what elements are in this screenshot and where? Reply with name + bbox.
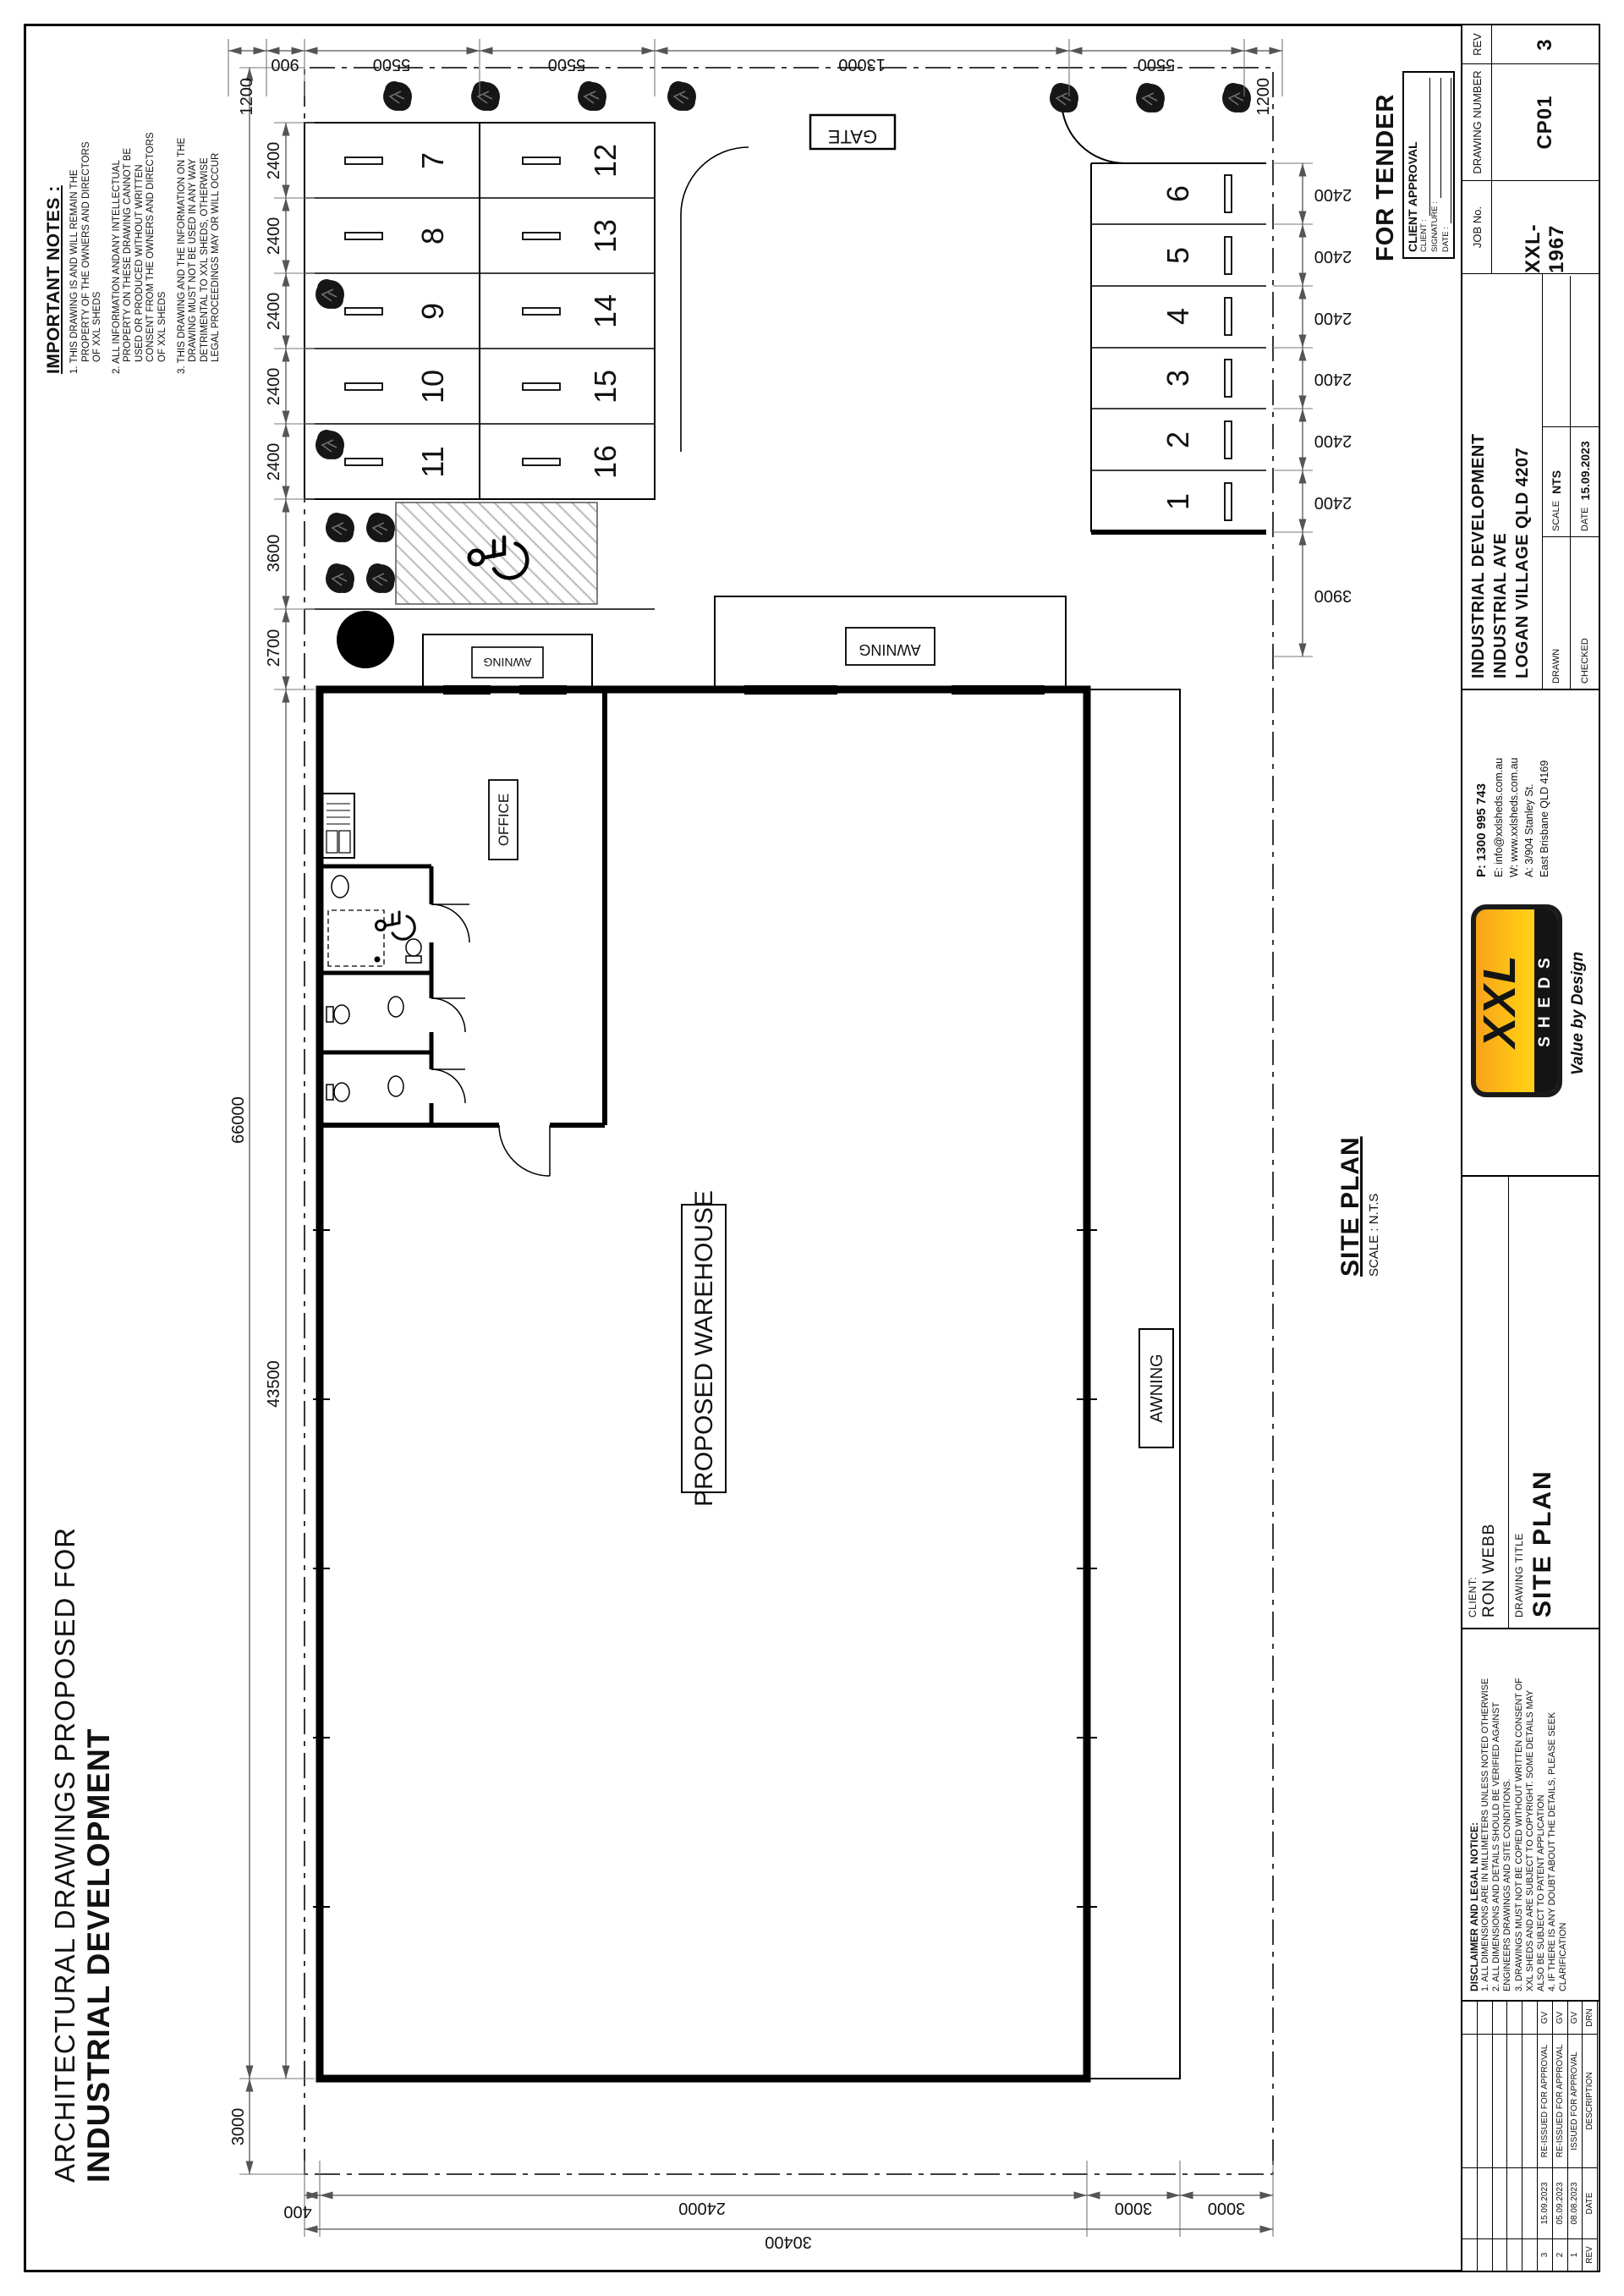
job-number-value: XXL-1967 (1492, 180, 1599, 273)
svg-text:11: 11 (415, 446, 450, 477)
svg-text:8: 8 (415, 228, 450, 244)
disclaimer-body: 1. ALL DIMENSIONS ARE IN MILLIMETERS UNL… (1480, 1638, 1569, 1991)
drawing-title-value: SITE PLAN (1528, 1187, 1557, 1618)
client-approval-title: CLIENT APPROVAL (1406, 78, 1419, 252)
svg-text:6: 6 (1160, 185, 1195, 202)
contact-block: P: 1300 995 743 E: info@xxlsheds.com.au … (1473, 695, 1552, 877)
svg-text:14: 14 (588, 294, 623, 328)
logo-word-xxl: XXL (1476, 909, 1523, 1092)
svg-text:5500: 5500 (1138, 55, 1176, 74)
scale-label: SCALE (1551, 501, 1561, 531)
svg-text:3000: 3000 (1208, 2199, 1246, 2217)
important-notes: IMPORTANT NOTES : 1. THIS DRAWING IS AND… (44, 34, 230, 374)
disabled-parking (396, 503, 597, 604)
svg-text:5500: 5500 (548, 55, 586, 74)
important-notes-heading: IMPORTANT NOTES : (44, 34, 64, 374)
svg-text:5: 5 (1160, 247, 1195, 264)
disclaimer: DISCLAIMER AND LEGAL NOTICE: 1. ALL DIME… (1462, 1628, 1599, 2000)
sheet-title-line1: ARCHITECTURAL DRAWINGS PROPOSED FOR (49, 1527, 81, 2183)
note-1: 1. THIS DRAWING IS AND WILL REMAIN THE P… (69, 34, 104, 374)
contact-address1: A: 3/904 Stanley St. (1522, 695, 1537, 877)
drawing-number-value: CP01 (1492, 63, 1599, 180)
svg-text:2400: 2400 (1314, 185, 1352, 204)
client-approval-box: CLIENT APPROVAL CLIENT : SIGNATURE : DAT… (1402, 71, 1455, 259)
disclaimer-heading: DISCLAIMER AND LEGAL NOTICE: (1468, 1638, 1480, 1991)
svg-text:43500: 43500 (265, 1360, 283, 1408)
svg-text:2400: 2400 (1314, 431, 1352, 450)
project-line1: INDUSTRIAL DEVELOPMENT (1468, 284, 1490, 678)
project-line3: LOGAN VILLAGE QLD 4207 (1512, 284, 1533, 678)
svg-text:15: 15 (588, 370, 623, 404)
svg-text:2700: 2700 (265, 629, 283, 667)
for-tender-stamp: FOR TENDER (1372, 31, 1400, 261)
rev-cell: 08.08.2023 (1568, 2167, 1583, 2238)
rev-cell: GV (1538, 2002, 1553, 2034)
client-and-title: CLIENT: RON WEBB DRAWING TITLE SITE PLAN (1462, 1175, 1599, 1628)
project-line2: INDUSTRIAL AVE (1490, 284, 1512, 678)
logo-tagline: Value by Design (1569, 952, 1588, 1075)
door-panel (519, 685, 567, 695)
svg-text:3900: 3900 (1314, 586, 1352, 605)
svg-text:2400: 2400 (265, 142, 283, 180)
approval-client-label: CLIENT : (1419, 219, 1430, 252)
contact-email: E: info@xxlsheds.com.au (1491, 695, 1506, 877)
svg-text:13000: 13000 (838, 55, 886, 74)
svg-text:2400: 2400 (265, 443, 283, 481)
contact-address2: East Brisbane QLD 4169 (1537, 695, 1552, 877)
rev-header: DATE (1583, 2167, 1598, 2238)
plan-caption: SITE PLAN SCALE : N.T.S (1336, 1136, 1381, 1277)
plan-caption-scale: SCALE : N.T.S (1367, 1136, 1381, 1277)
drawing-title-label: DRAWING TITLE (1513, 1187, 1525, 1618)
rev-cell: 1 (1568, 2238, 1583, 2271)
svg-text:10: 10 (415, 370, 450, 404)
svg-text:4: 4 (1160, 308, 1195, 325)
rev-cell: 2 (1553, 2238, 1568, 2271)
svg-text:5500: 5500 (373, 55, 411, 74)
svg-text:3000: 3000 (1115, 2199, 1153, 2217)
drawn-label: DRAWN (1551, 649, 1561, 684)
warehouse-label: PROPOSED WAREHOUSE (690, 1190, 718, 1507)
approval-client-line (1421, 78, 1430, 216)
office-label: OFFICE (496, 794, 512, 846)
svg-text:2400: 2400 (1314, 247, 1352, 266)
svg-text:30400: 30400 (765, 2233, 812, 2251)
plan-caption-title: SITE PLAN (1336, 1136, 1365, 1277)
rev-cell: RE-ISSUED FOR APPROVAL (1553, 2034, 1568, 2167)
scale-value: NTS (1550, 470, 1563, 494)
date-value: 15.09.2023 (1578, 441, 1592, 500)
svg-text:13: 13 (588, 219, 623, 253)
contact-phone: P: 1300 995 743 (1473, 695, 1491, 877)
svg-text:2400: 2400 (265, 293, 283, 331)
screenshot-root: PROPOSED WAREHOUSE AWNING (0, 0, 1624, 2296)
contact-web: W: www.xxlsheds.com.au (1506, 695, 1522, 877)
date-label: DATE (1580, 507, 1590, 531)
svg-text:9: 9 (415, 303, 450, 320)
svg-text:12: 12 (588, 144, 623, 178)
gate-label: GATE (828, 126, 877, 147)
approval-signature-line (1432, 78, 1441, 198)
drawing-number-label: DRAWING NUMBER (1462, 63, 1491, 180)
svg-text:1: 1 (1160, 493, 1195, 510)
svg-text:3: 3 (1160, 370, 1195, 387)
rev-header: DESCRIPTION (1583, 2034, 1598, 2167)
svg-text:16: 16 (588, 445, 623, 479)
job-number-label: JOB No. (1462, 180, 1491, 273)
roller-door (952, 685, 1045, 695)
title-block: 3 15.09.2023 RE-ISSUED FOR APPROVAL GV 2… (1461, 25, 1599, 2271)
rev-cell: 05.09.2023 (1553, 2167, 1568, 2238)
svg-text:2400: 2400 (1314, 309, 1352, 327)
note-3: 3. THIS DRAWING AND THE INFORMATION ON T… (177, 34, 222, 374)
svg-text:1200: 1200 (238, 78, 256, 116)
svg-text:2400: 2400 (265, 368, 283, 406)
rev-label: REV (1462, 25, 1491, 63)
roller-door (744, 685, 837, 695)
xxl-sheds-logo: XXL SHEDS (1471, 904, 1562, 1097)
client-name: RON WEBB (1480, 1187, 1499, 1618)
rev-cell: GV (1568, 2002, 1583, 2034)
water-tank (337, 611, 394, 668)
svg-text:2400: 2400 (265, 217, 283, 255)
revision-table: 3 15.09.2023 RE-ISSUED FOR APPROVAL GV 2… (1462, 2000, 1599, 2271)
sheet-title-line2: INDUSTRIAL DEVELOPMENT (81, 1527, 118, 2183)
checked-label: CHECKED (1580, 638, 1590, 684)
door-panel (443, 685, 491, 695)
rev-cell: RE-ISSUED FOR APPROVAL (1538, 2034, 1553, 2167)
drawing-sheet: PROPOSED WAREHOUSE AWNING (0, 0, 1624, 2296)
svg-text:2400: 2400 (1314, 493, 1352, 512)
project-section: INDUSTRIAL DEVELOPMENT INDUSTRIAL AVE LO… (1462, 25, 1599, 689)
east-awning-2-label: AWNING (859, 641, 920, 658)
svg-text:7: 7 (415, 152, 450, 169)
sheet-title: ARCHITECTURAL DRAWINGS PROPOSED FOR INDU… (49, 1527, 117, 2183)
rev-header: REV (1583, 2238, 1598, 2271)
svg-text:2400: 2400 (1314, 370, 1352, 388)
approval-date-line (1442, 78, 1451, 223)
bay-numbers-row-a: 7 8 9 10 11 (415, 152, 450, 478)
rev-value: 3 (1492, 25, 1599, 63)
rev-cell: GV (1553, 2002, 1568, 2034)
rev-cell: ISSUED FOR APPROVAL (1568, 2034, 1583, 2167)
svg-text:1200: 1200 (1254, 78, 1273, 116)
svg-text:900: 900 (271, 55, 299, 74)
client-label: CLIENT: (1467, 1187, 1479, 1618)
svg-text:2: 2 (1160, 431, 1195, 448)
svg-text:66000: 66000 (229, 1096, 248, 1144)
rev-cell: 15.09.2023 (1538, 2167, 1553, 2238)
note-2: 2. ALL INFORMATION ANDANY INTELLECTUAL P… (112, 34, 169, 374)
approval-date-label: DATE : (1441, 227, 1452, 252)
svg-text:24000: 24000 (678, 2199, 726, 2217)
east-awning-1-label: AWNING (483, 656, 531, 669)
svg-text:3600: 3600 (265, 535, 283, 573)
rev-header: DRN (1583, 2002, 1598, 2034)
bay-numbers-row-b: 12 13 14 15 16 (588, 144, 623, 479)
south-awning-label: AWNING (1148, 1354, 1166, 1422)
svg-text:400: 400 (283, 2202, 311, 2221)
approval-signature-label: SIGNATURE : (1430, 201, 1441, 252)
logo-word-sheds: SHEDS (1534, 909, 1557, 1092)
svg-text:3000: 3000 (229, 2108, 248, 2146)
rev-cell: 3 (1538, 2238, 1553, 2271)
logo-section: XXL SHEDS Value by Design P: 1300 995 74… (1462, 689, 1599, 1175)
